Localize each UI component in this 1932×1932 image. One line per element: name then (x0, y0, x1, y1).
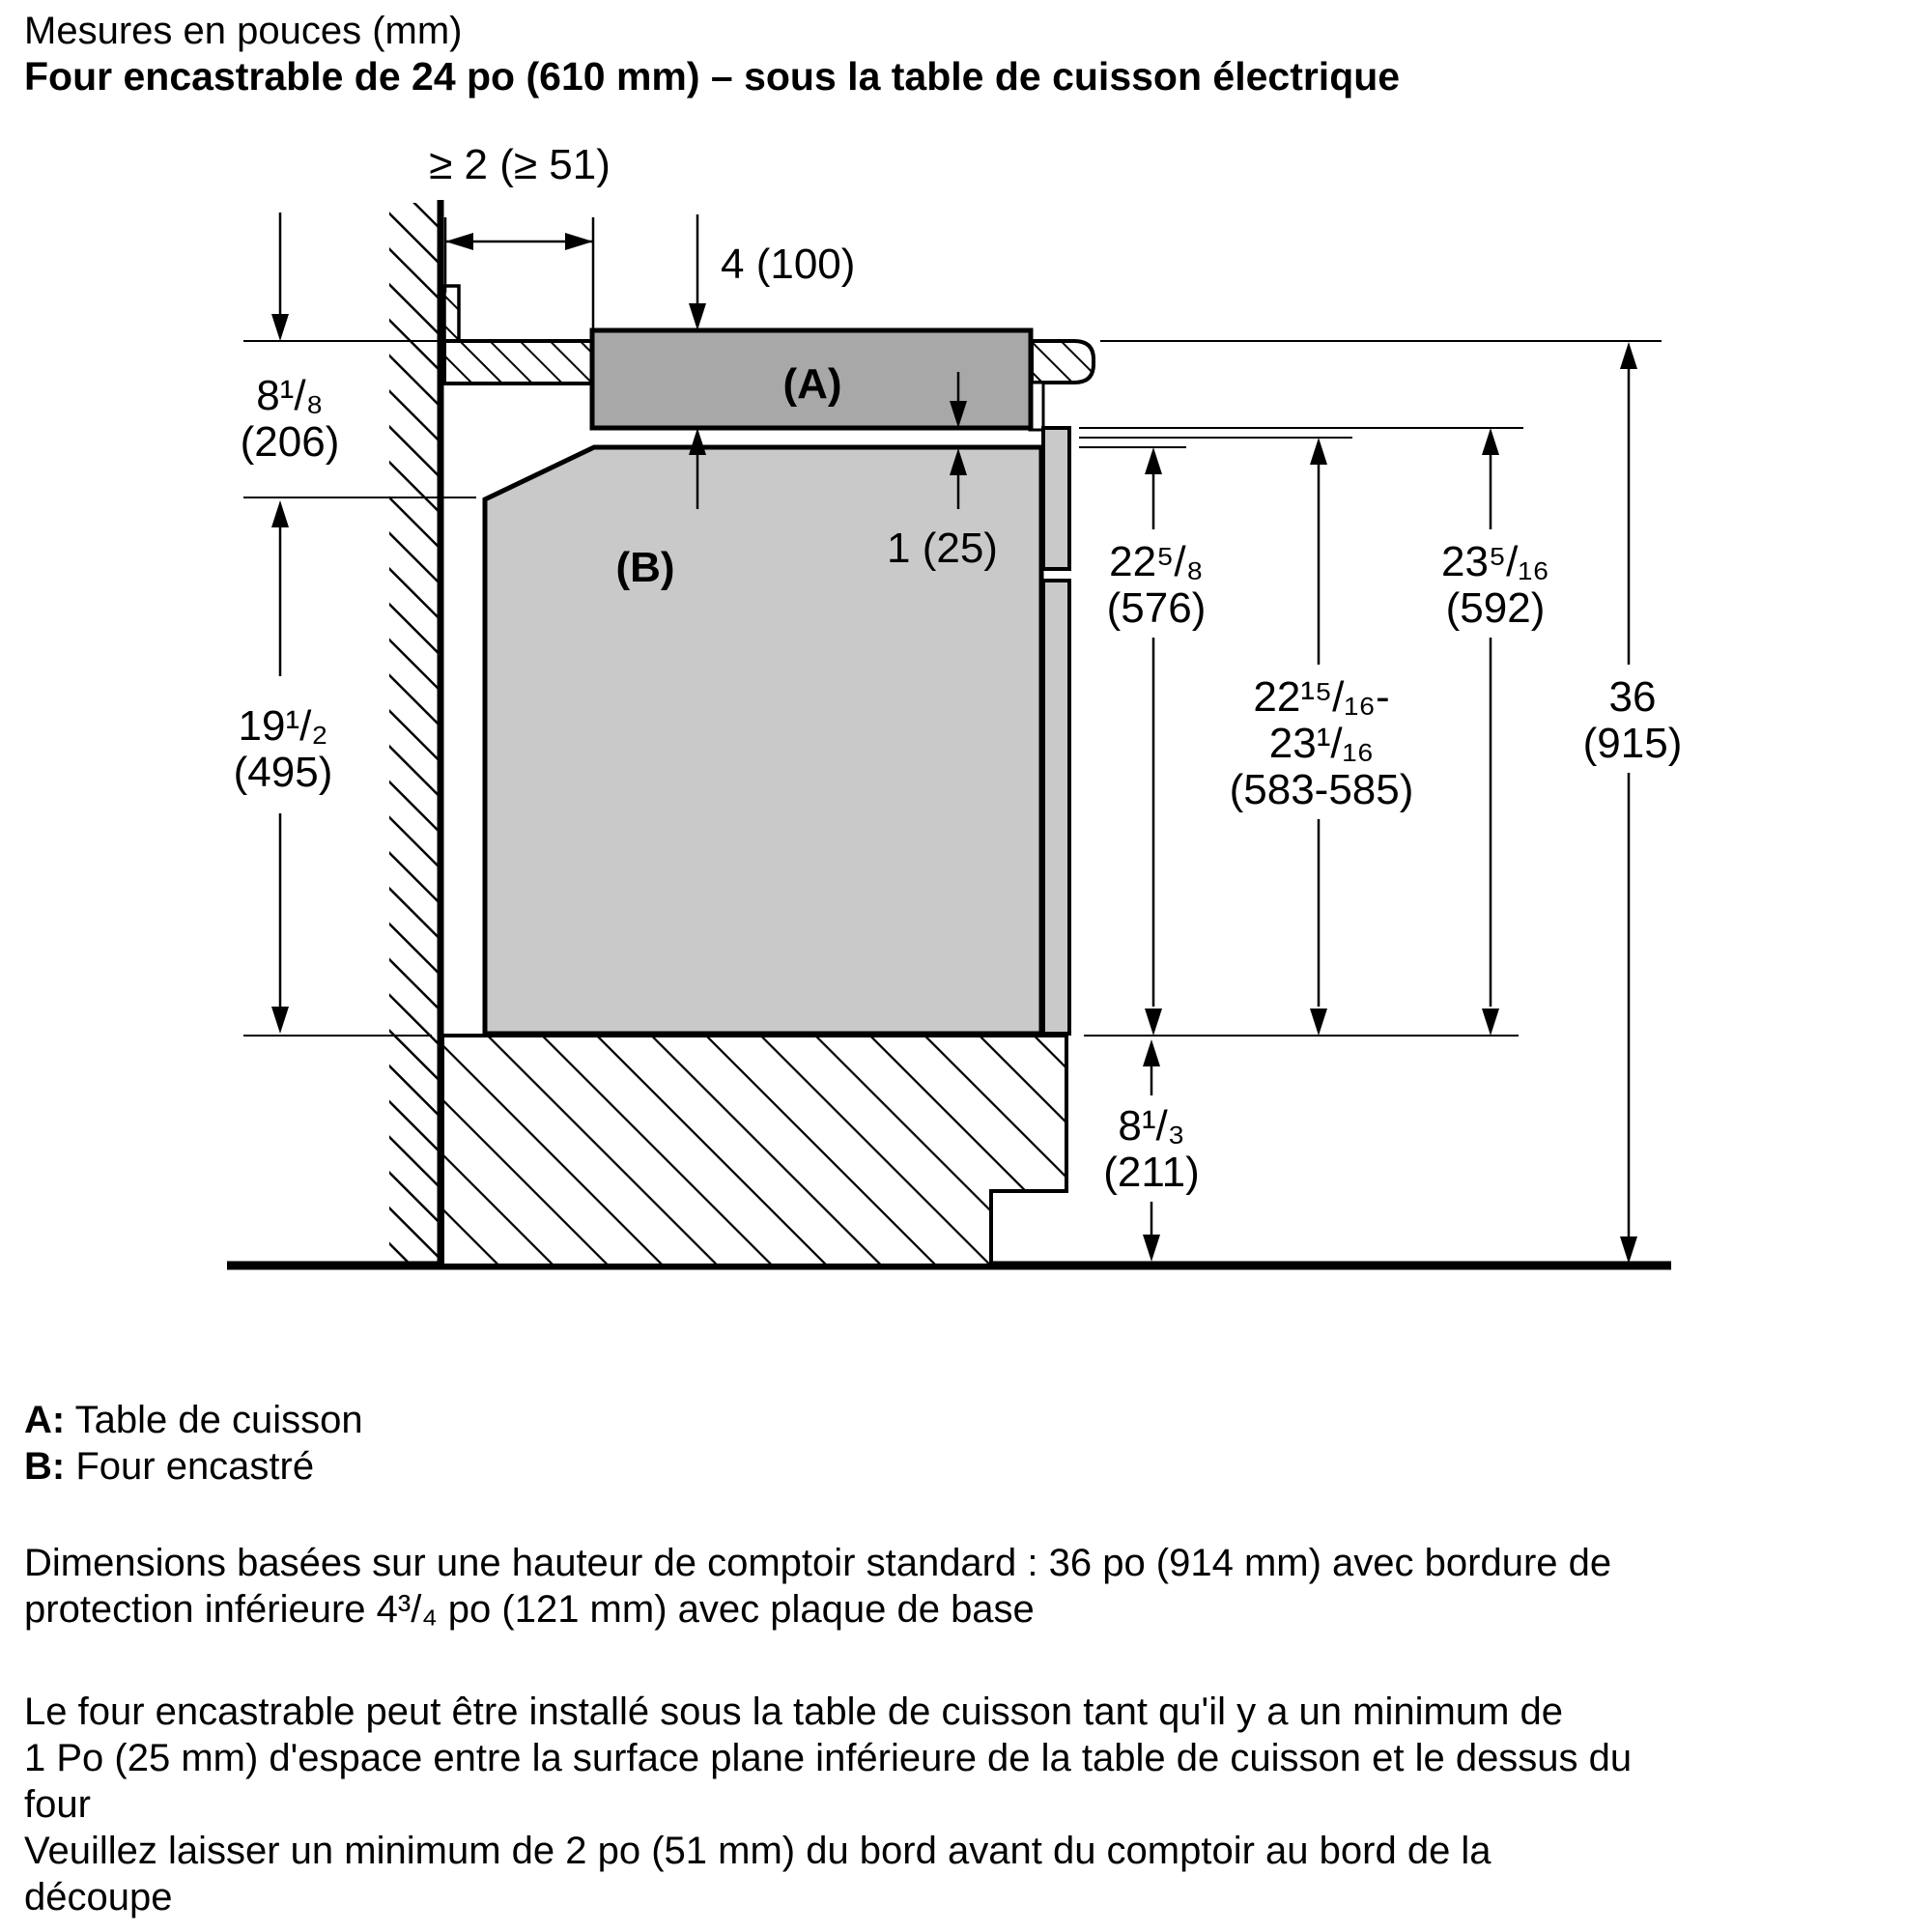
oven-trim-upper (1043, 428, 1069, 569)
note-line: four (24, 1781, 1632, 1828)
dim-576-in: 22⁵/₈ (1109, 538, 1204, 585)
dim-niche-from-counter-bottom: 23⁵/₁₆ (592) (1441, 428, 1549, 1036)
cooktop-label: (A) (782, 360, 841, 408)
legend: A: Table de cuisson B: Four encastré (24, 1397, 363, 1490)
dim-base-height: 8¹/₃ (211) (1103, 1039, 1199, 1262)
legend-item-cooktop: A: Table de cuisson (24, 1397, 363, 1443)
dim-206-mm: (206) (241, 418, 340, 466)
arrow-up-icon (1482, 428, 1499, 455)
legend-key-a: A: (24, 1399, 65, 1441)
arrow-up-icon (1620, 342, 1637, 369)
arrow-left-icon (445, 233, 473, 250)
note-front-edge: Veuillez laisser un minimum de 2 po (51 … (24, 1828, 1492, 1920)
dim-592-mm: (592) (1446, 584, 1546, 632)
wall-section (389, 200, 440, 1265)
note-line: Veuillez laisser un minimum de 2 po (51 … (24, 1828, 1492, 1874)
note-line: Le four encastrable peut être installé s… (24, 1689, 1632, 1735)
dim-592-in: 23⁵/₁₆ (1441, 538, 1549, 585)
note-line: 1 Po (25 mm) d'espace entre la surface p… (24, 1735, 1632, 1781)
dim-583-l3: (583-585) (1230, 766, 1414, 813)
backsplash-lip (444, 286, 459, 341)
arrow-up-icon (271, 500, 289, 527)
arrow-down-icon (689, 303, 706, 330)
arrow-right-icon (565, 233, 593, 250)
dim-583-l2: 23¹/₁₆ (1269, 720, 1374, 767)
dim-oven-height: 19¹/₂ (495) (234, 500, 333, 1034)
dim-576-mm: (576) (1107, 584, 1207, 632)
spec-sheet-page: { "title": { "line1": "Mesures en pouces… (0, 0, 1932, 1932)
oven-door-front (1043, 581, 1069, 1034)
arrow-up-icon (1145, 447, 1162, 474)
dim-cooktop-thickness-label: 4 (100) (721, 241, 855, 288)
dim-915-in: 36 (1609, 673, 1657, 721)
dim-583-l1: 22¹⁵/₁₆- (1253, 673, 1389, 721)
dim-wall-clearance-label: ≥ 2 (≥ 51) (429, 141, 611, 188)
dim-206-in: 8¹/₈ (256, 372, 324, 419)
countertop-right-edge (1032, 341, 1094, 383)
dim-counter-height: 36 (915) (1583, 342, 1683, 1264)
note-standard-counter: Dimensions basées sur une hauteur de com… (24, 1540, 1611, 1633)
note-line: protection inférieure 4³/₄ po (121 mm) a… (24, 1586, 1611, 1633)
note-line: découpe (24, 1874, 1492, 1920)
arrow-down-icon (1482, 1009, 1499, 1036)
note-clearance: Le four encastrable peut être installé s… (24, 1689, 1632, 1828)
arrow-down-icon (271, 314, 289, 341)
oven-label: (B) (615, 544, 674, 591)
arrow-up-icon (1143, 1039, 1160, 1066)
base-plinth (442, 1036, 1066, 1265)
dim-915-mm: (915) (1583, 720, 1683, 767)
wall-hatch (389, 203, 440, 1265)
dim-counter-to-oven-top: 8¹/₈ (206) (241, 213, 340, 466)
installation-diagram: ≥ 2 (≥ 51) 4 (100) 1 (25) 8¹/₈ (206) 19¹… (0, 0, 1932, 1352)
legend-item-oven: B: Four encastré (24, 1443, 363, 1490)
arrow-down-icon (271, 1007, 289, 1034)
arrow-up-icon (1310, 438, 1327, 465)
dim-air-gap-label: 1 (25) (887, 525, 998, 572)
arrow-down-icon (1145, 1009, 1162, 1036)
dim-495-in: 19¹/₂ (239, 702, 328, 750)
dim-495-mm: (495) (234, 749, 333, 796)
built-in-oven (485, 428, 1069, 1034)
arrow-down-icon (1620, 1236, 1637, 1264)
arrow-down-icon (1310, 1009, 1327, 1036)
legend-key-b: B: (24, 1445, 65, 1488)
note-line: Dimensions basées sur une hauteur de com… (24, 1540, 1611, 1586)
dim-cutout-range: 22¹⁵/₁₆- 23¹/₁₆ (583-585) (1230, 438, 1414, 1036)
legend-label-a: Table de cuisson (65, 1399, 362, 1441)
dim-211-in: 8¹/₃ (1118, 1102, 1184, 1150)
arrow-down-icon (1143, 1235, 1160, 1262)
dim-211-mm: (211) (1103, 1149, 1199, 1196)
arrow-up-icon (689, 428, 706, 455)
countertop-left-strip (444, 341, 592, 384)
dim-niche-from-oven-top: 22⁵/₈ (576) (1107, 447, 1207, 1036)
legend-label-b: Four encastré (65, 1445, 314, 1488)
